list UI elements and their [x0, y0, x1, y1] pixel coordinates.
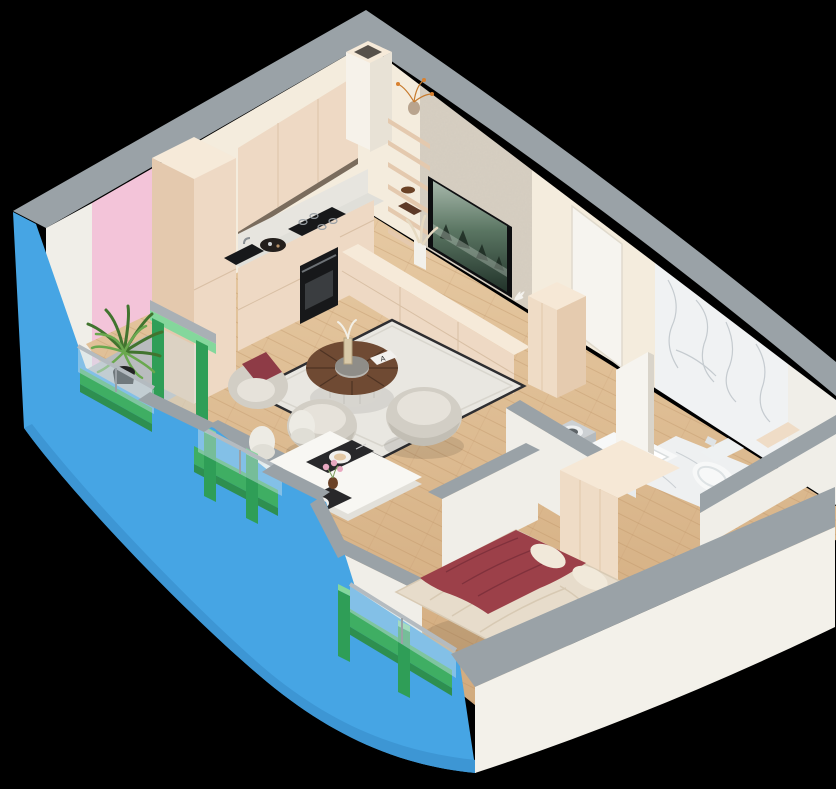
- apartment-isometric-floorplan: A: [0, 0, 836, 789]
- serving-tray: [260, 238, 286, 252]
- shelf-bowl: [401, 187, 415, 194]
- armchair-right: [384, 387, 464, 459]
- storage-cabinet: [528, 282, 586, 398]
- dining-chair-back-right: [289, 410, 315, 444]
- vent-shaft-column: [346, 41, 392, 152]
